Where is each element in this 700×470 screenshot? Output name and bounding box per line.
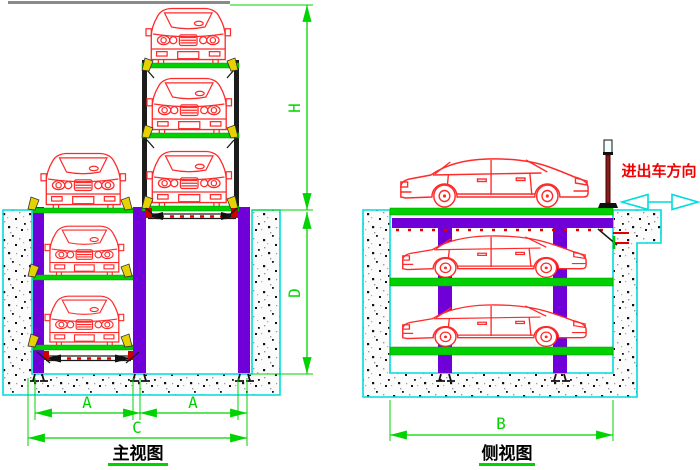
tower-platform-ground	[142, 206, 239, 211]
dim-d-label: D	[285, 288, 304, 298]
parking-system-drawing: H D A A C 主视图	[0, 0, 700, 470]
direction-arrow-icon	[622, 195, 698, 210]
sensor-pole	[598, 140, 618, 208]
car-side-top	[401, 159, 588, 207]
dim-a-left-label: A	[82, 393, 92, 412]
side-view: 进出车方向 B 侧视图	[363, 140, 698, 466]
side-platform-top	[390, 208, 613, 215]
dim-b-label: B	[496, 414, 506, 433]
car-front-pit-upper	[45, 226, 124, 275]
side-platform-bottom	[390, 347, 613, 355]
front-view-title: 主视图	[113, 443, 164, 464]
car-front-top	[146, 9, 230, 64]
side-view-title-underline	[479, 463, 535, 466]
front-column-middle	[133, 207, 146, 373]
front-view: H D A A C 主视图	[3, 1, 313, 466]
drawing-svg: H D A A C 主视图	[0, 0, 700, 470]
tower-platform-top	[142, 63, 239, 68]
car-front-left-ground	[41, 154, 125, 209]
dim-a-right-label: A	[188, 393, 198, 412]
car-front-tower-low	[147, 152, 231, 207]
dim-h-label: H	[285, 103, 304, 113]
left-bay-platform-pit1	[33, 275, 133, 280]
direction-label: 进出车方向	[621, 162, 696, 180]
pit-mechanism	[37, 351, 139, 363]
side-dimensions: B	[390, 400, 613, 441]
left-bay-platform-pit2	[33, 345, 133, 350]
front-view-title-underline	[108, 463, 168, 466]
front-column-right	[238, 207, 250, 373]
car-front-pit-lower	[45, 296, 124, 345]
left-bay-platform-ground	[33, 208, 133, 213]
side-platform-mid	[390, 278, 613, 286]
tower-platform-mid	[142, 133, 239, 138]
side-top-beam	[392, 218, 613, 228]
ceiling-line	[8, 1, 230, 4]
bracket	[227, 58, 238, 71]
dim-c-label: C	[132, 418, 142, 437]
side-view-title: 侧视图	[482, 443, 533, 464]
car-front-tower-mid	[147, 79, 231, 134]
